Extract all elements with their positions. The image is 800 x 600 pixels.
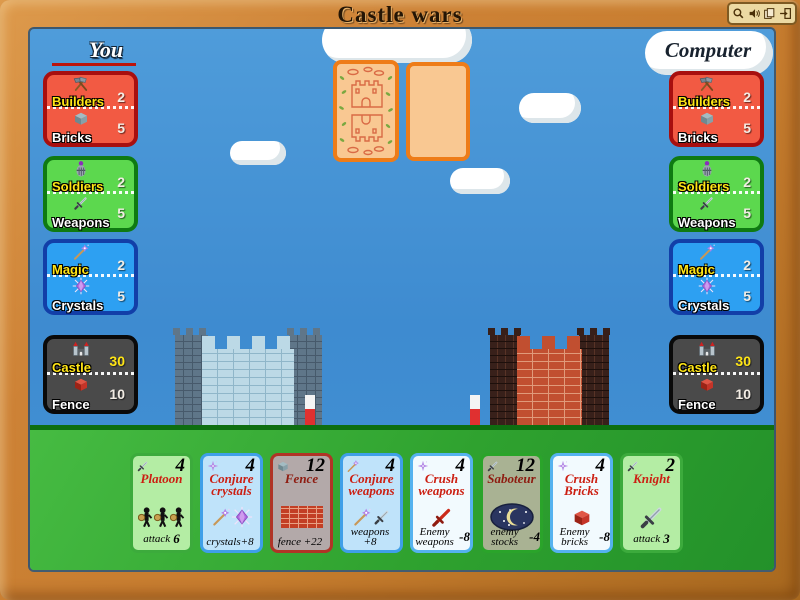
computer-fence-post xyxy=(470,395,480,425)
castle-icon xyxy=(697,339,717,357)
you-castle-wall xyxy=(202,349,294,425)
magic-wand-icon xyxy=(71,243,91,261)
you-crystals-value: 5 xyxy=(117,288,125,304)
you-builders-label: Builders xyxy=(52,94,104,109)
computer-bricks-label: Bricks xyxy=(678,130,718,145)
toolbar xyxy=(727,2,797,25)
builders-hammers-icon xyxy=(71,75,91,93)
you-builders-value: 2 xyxy=(117,89,125,105)
knight-helmet-icon xyxy=(697,160,717,178)
card-effect-value: 3 xyxy=(663,531,670,547)
platoon-soldiers-art xyxy=(133,501,190,533)
card-cost: 12 xyxy=(306,455,325,477)
player-computer-label: Computer xyxy=(642,38,774,63)
crystal-sparkle-icon xyxy=(206,459,220,473)
brick-icon xyxy=(71,109,91,127)
you-soldiers-value: 2 xyxy=(117,174,125,190)
cloud xyxy=(519,93,581,123)
you-fence-label: Fence xyxy=(52,397,90,412)
computer-castle-panel: 30 Castle 10 Fence xyxy=(669,335,764,414)
card-crush-weapons[interactable]: 4 Crush weapons Enemy weapons -8 xyxy=(410,453,473,553)
castle-icon xyxy=(71,339,91,357)
magic-wand-icon xyxy=(346,459,360,473)
crystal-sparkle-icon xyxy=(416,459,430,473)
computer-soldiers-value: 2 xyxy=(743,174,751,190)
you-builders-panel: 2 Builders 5 Bricks xyxy=(43,71,138,147)
card-saboteur[interactable]: 12 Saboteur enemy stocks -4 xyxy=(480,453,543,553)
exit-door-icon[interactable] xyxy=(779,7,792,20)
computer-builders-value: 2 xyxy=(743,89,751,105)
computer-builders-label: Builders xyxy=(678,94,730,109)
computer-castle-tower xyxy=(579,335,609,425)
deck-card-back[interactable] xyxy=(333,60,399,162)
you-soldiers-label: Soldiers xyxy=(52,179,103,194)
brick-icon xyxy=(697,109,717,127)
card-cost: 4 xyxy=(386,455,396,477)
card-conjure-weapons[interactable]: 4 Conjure weapons weapons +8 xyxy=(340,453,403,553)
fence-brick-icon xyxy=(71,375,91,393)
sword-icon xyxy=(697,194,717,212)
computer-magic-panel: 2 Magic 5 Crystals xyxy=(669,239,764,315)
card-effect: attack xyxy=(633,534,660,544)
card-effect-value: -8 xyxy=(459,529,470,545)
sword-icon xyxy=(486,459,500,473)
you-weapons-label: Weapons xyxy=(52,215,110,230)
computer-fence-label: Fence xyxy=(678,397,716,412)
you-castle-label: Castle xyxy=(52,360,91,375)
crystal-icon xyxy=(697,277,717,295)
computer-weapons-value: 5 xyxy=(743,205,751,221)
you-bricks-label: Bricks xyxy=(52,130,92,145)
card-conjure-crystals[interactable]: 4 Conjure crystals crystals+8 xyxy=(200,453,263,553)
computer-weapons-label: Weapons xyxy=(678,215,736,230)
card-effect: attack xyxy=(143,534,170,544)
card-knight[interactable]: 2 Knight attack 3 xyxy=(620,453,683,553)
card-cost: 4 xyxy=(176,455,186,477)
pages-icon[interactable] xyxy=(763,7,776,20)
you-weapons-value: 5 xyxy=(117,205,125,221)
card-effect: crystals+8 xyxy=(206,537,253,547)
cloud xyxy=(450,168,510,194)
you-castle-panel: 30 Castle 10 Fence xyxy=(43,335,138,414)
you-magic-value: 2 xyxy=(117,257,125,273)
card-effect-value: -8 xyxy=(599,529,610,545)
card-effect: Enemy bricks xyxy=(553,527,596,547)
brick-icon xyxy=(276,459,290,473)
game-title: Castle wars xyxy=(0,2,800,28)
cloud xyxy=(230,141,286,165)
wand-crystal-art xyxy=(203,501,260,533)
you-fence-value: 10 xyxy=(109,386,125,402)
card-platoon[interactable]: 4 Platoon attack 6 xyxy=(130,453,193,553)
computer-bricks-value: 5 xyxy=(743,120,751,136)
computer-crystals-value: 5 xyxy=(743,288,751,304)
card-effect: Enemy weapons xyxy=(413,527,456,547)
magnifier-icon[interactable] xyxy=(732,7,745,20)
sword-art xyxy=(623,501,680,533)
computer-fence-value: 10 xyxy=(735,386,751,402)
cloud xyxy=(322,27,472,63)
computer-castle-tower xyxy=(490,335,520,425)
card-effect: enemy stocks xyxy=(483,527,526,547)
magic-wand-icon xyxy=(697,243,717,261)
card-effect-value: 6 xyxy=(173,531,180,547)
card-cost: 4 xyxy=(596,455,606,477)
you-bricks-value: 5 xyxy=(117,120,125,136)
you-castle-value: 30 xyxy=(109,353,125,369)
you-magic-panel: 2 Magic 5 Crystals xyxy=(43,239,138,315)
computer-magic-value: 2 xyxy=(743,257,751,273)
crystal-icon xyxy=(71,277,91,295)
builders-hammers-icon xyxy=(697,75,717,93)
card-cost: 4 xyxy=(456,455,466,477)
card-effect: weapons +8 xyxy=(343,527,397,547)
you-magic-label: Magic xyxy=(52,262,89,277)
computer-magic-label: Magic xyxy=(678,262,715,277)
sword-icon xyxy=(71,194,91,212)
sword-icon xyxy=(136,459,150,473)
fence-brick-icon xyxy=(697,375,717,393)
sound-icon[interactable] xyxy=(748,7,761,20)
computer-castle-label: Castle xyxy=(678,360,717,375)
computer-castle-wall xyxy=(517,349,582,425)
you-soldiers-panel: 2 Soldiers 5 Weapons xyxy=(43,156,138,232)
card-cost: 12 xyxy=(516,455,535,477)
card-cost: 4 xyxy=(246,455,256,477)
computer-crystals-label: Crystals xyxy=(678,298,729,313)
card-crush-bricks[interactable]: 4 Crush Bricks Enemy bricks -8 xyxy=(550,453,613,553)
sword-icon xyxy=(626,459,640,473)
player-you-label: You xyxy=(50,37,162,63)
computer-castle-value: 30 xyxy=(735,353,751,369)
card-fence[interactable]: 12 Fence fence +22 xyxy=(270,453,333,553)
active-player-underline xyxy=(52,63,136,66)
discard-slot xyxy=(406,62,470,161)
brick-wall-art xyxy=(273,501,330,533)
computer-soldiers-label: Soldiers xyxy=(678,179,729,194)
card-effect: fence +22 xyxy=(278,537,322,547)
knight-helmet-icon xyxy=(71,160,91,178)
card-cost: 2 xyxy=(666,455,676,477)
crystal-sparkle-icon xyxy=(556,459,570,473)
hand: 4 Platoon attack 6 4 Conjure crystals cr… xyxy=(130,453,683,553)
you-fence-post xyxy=(305,395,315,425)
game-board: You Computer 2 Builders 5 Bricks 2 Soldi… xyxy=(28,27,776,572)
computer-soldiers-panel: 2 Soldiers 5 Weapons xyxy=(669,156,764,232)
you-crystals-label: Crystals xyxy=(52,298,103,313)
card-effect-value: -4 xyxy=(529,529,540,545)
computer-builders-panel: 2 Builders 5 Bricks xyxy=(669,71,764,147)
